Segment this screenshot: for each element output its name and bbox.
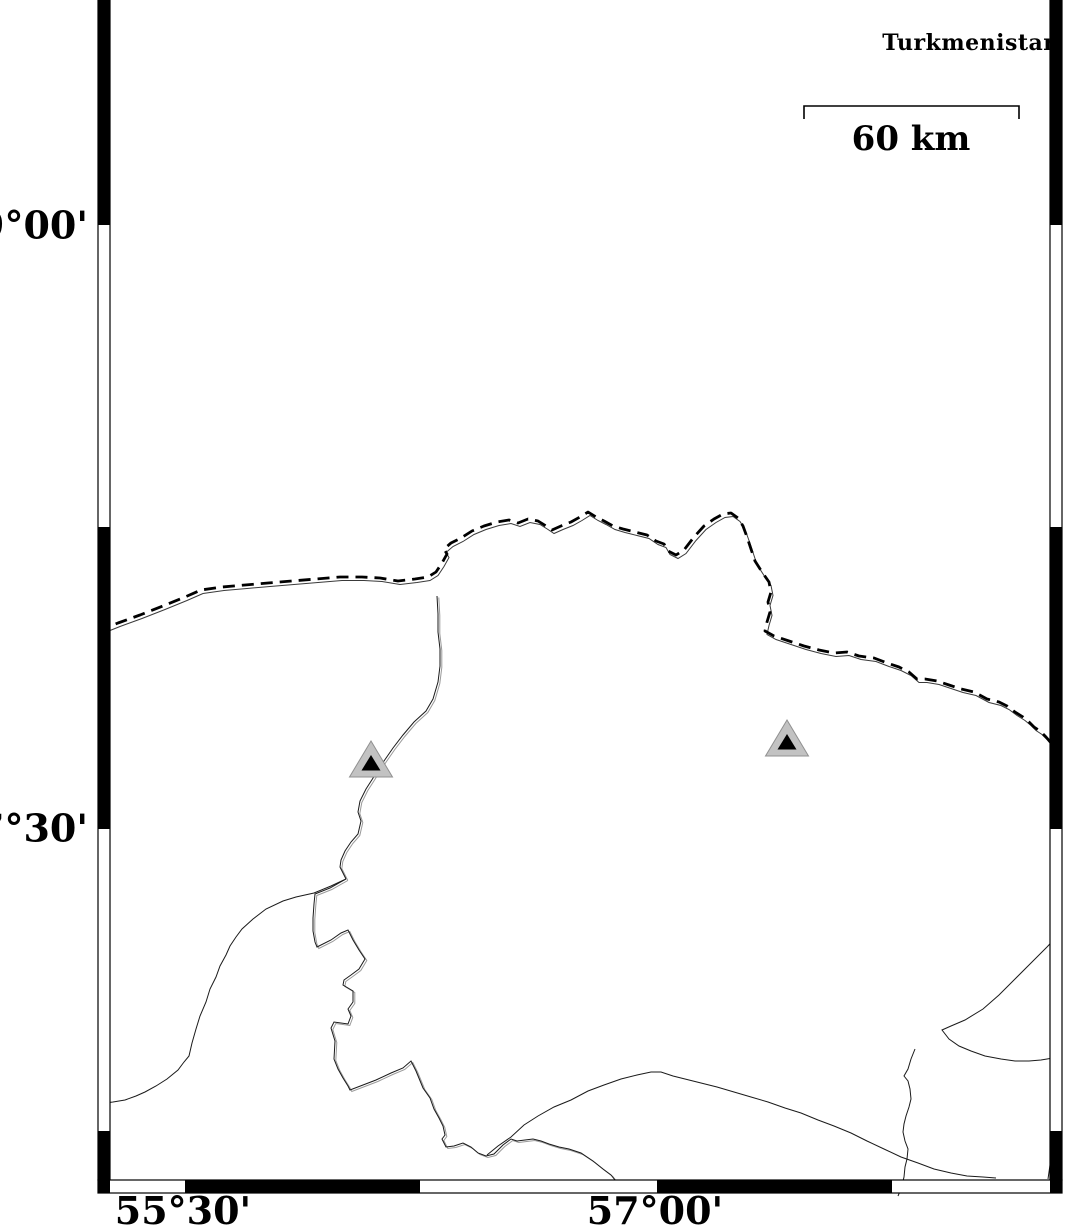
scalebar-label: 60 km — [852, 119, 971, 159]
bottom-frame-band-black-segment — [1050, 1180, 1062, 1193]
bottom-frame-band-black-segment — [98, 1180, 110, 1193]
map-canvas: Turkmenistan 60 km 39°00'37°30'55°30'57°… — [0, 0, 1066, 1229]
right-frame-band-black-segment — [1050, 527, 1062, 829]
longitude-label: 55°30' — [115, 1188, 251, 1229]
country-label: Turkmenistan — [882, 30, 1060, 56]
longitude-label: 57°00' — [587, 1188, 723, 1229]
map-background — [0, 0, 1066, 1229]
left-frame-band-black-segment — [98, 527, 110, 829]
latitude-label: 39°00' — [0, 203, 88, 248]
latitude-label: 37°30' — [0, 806, 88, 851]
left-frame-band-black-segment — [98, 1131, 110, 1180]
right-frame-band-black-segment — [1050, 1131, 1062, 1180]
left-frame-band-black-segment — [98, 0, 110, 225]
